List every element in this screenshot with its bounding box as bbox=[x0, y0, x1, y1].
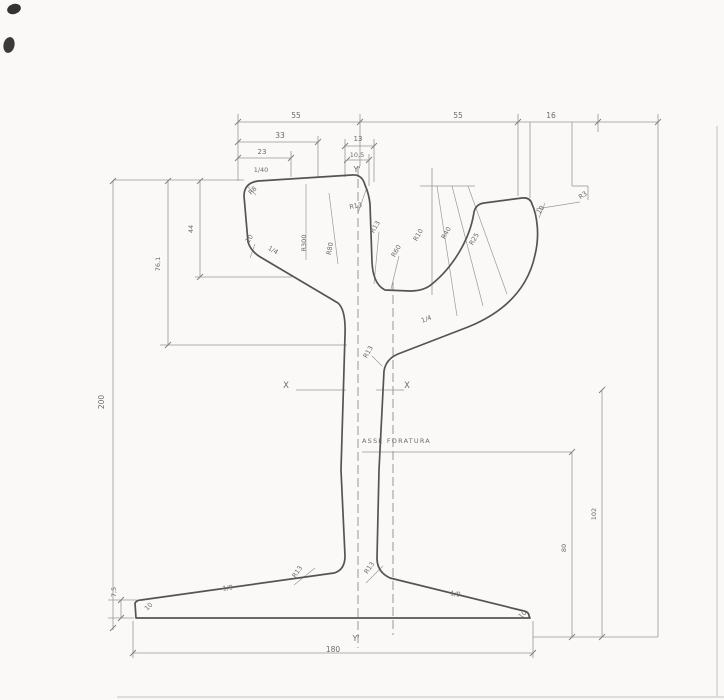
scan-smudge bbox=[6, 2, 22, 16]
slope-1-40: 1/40 bbox=[254, 166, 269, 174]
rail-drawing-canvas: 55551633132310,5Y'1/40R8101/4R300R80R13R… bbox=[0, 0, 724, 700]
radius-r13-head: R13 bbox=[349, 201, 363, 211]
radius-r10-throat: R10 bbox=[412, 227, 425, 242]
dim-44: 44 bbox=[187, 225, 195, 233]
dim-23: 23 bbox=[258, 148, 267, 156]
dim-foot-180: 180 bbox=[326, 645, 341, 654]
radius-r13-foot-right: R13 bbox=[362, 560, 376, 575]
dim-76-1: 76,1 bbox=[154, 257, 162, 271]
axis-y-bottom: Y' bbox=[351, 634, 359, 643]
radius-r300-crown: R300 bbox=[300, 235, 308, 252]
scanned-drawing-page: 55551633132310,5Y'1/40R8101/4R300R80R13R… bbox=[0, 0, 724, 700]
dim-7-5: 7,5 bbox=[110, 587, 118, 597]
drawing-labels: 55551633132310,5Y'1/40R8101/4R300R80R13R… bbox=[97, 111, 598, 654]
dim-10-foot-left: 10 bbox=[143, 601, 155, 613]
radius-r3-guard: R3 bbox=[577, 190, 589, 202]
dim-top-55-right: 55 bbox=[453, 111, 463, 120]
axis-y-top: Y' bbox=[352, 165, 360, 174]
dim-10-guard-tip: 10 bbox=[535, 204, 546, 215]
slope-1-4-guard: 1/4 bbox=[420, 314, 433, 325]
radius-r25-throat: R25 bbox=[468, 231, 481, 246]
dim-top-16: 16 bbox=[546, 111, 556, 120]
centerlines bbox=[358, 166, 393, 648]
slope-1-9-right: 1/9 bbox=[450, 589, 462, 599]
radius-r60-groove: R60 bbox=[390, 243, 403, 258]
dim-13: 13 bbox=[354, 135, 363, 143]
dim-102-neutral-axis: 102 bbox=[590, 508, 598, 520]
dim-10-5: 10,5 bbox=[350, 151, 364, 159]
dim-33: 33 bbox=[275, 131, 285, 140]
axis-x-left: X bbox=[283, 381, 289, 391]
slope-1-9-left: 1/9 bbox=[222, 583, 233, 592]
hole-axis-label: ASSE FORATURA bbox=[362, 437, 431, 445]
dim-80-hole-axis: 80 bbox=[560, 544, 568, 552]
radius-r40-throat: R40 bbox=[440, 225, 453, 240]
dim-height-200: 200 bbox=[97, 395, 106, 410]
dim-top-55-left: 55 bbox=[291, 111, 301, 120]
radius-r8-head: R8 bbox=[247, 185, 259, 197]
leader-lines bbox=[247, 184, 580, 585]
radius-r80-crown: R80 bbox=[325, 242, 335, 256]
axis-x-right: X bbox=[404, 381, 410, 391]
slope-1-4-head: 1/4 bbox=[266, 244, 279, 256]
scan-smudge bbox=[2, 36, 16, 54]
dim-10-head-side: 10 bbox=[244, 233, 255, 244]
